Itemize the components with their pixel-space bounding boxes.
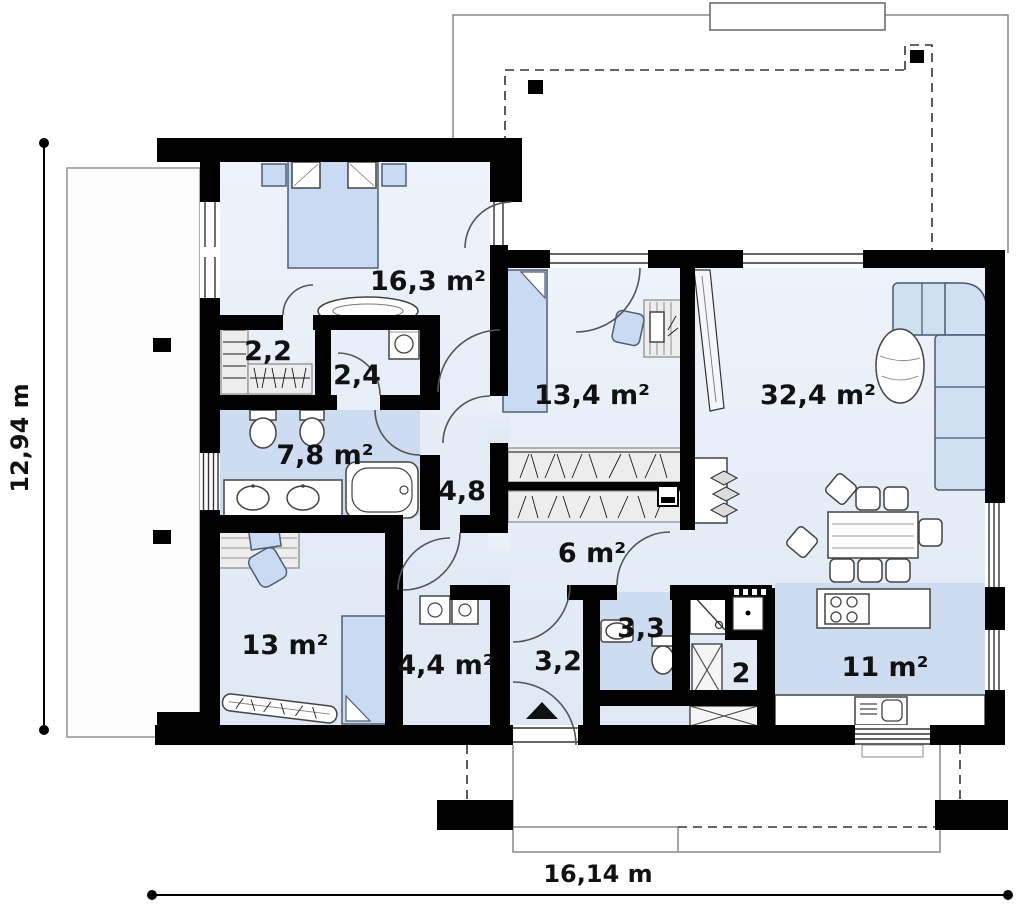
roof-outline	[453, 3, 1008, 253]
floor-plan-drawing: 16,3 m² 2,2 2,4 7,8 m² 4,8 13,4 m² 32,4 …	[0, 0, 1024, 917]
dimension-width-label: 16,14 m	[543, 860, 652, 888]
chair-icon	[858, 559, 882, 582]
terrace-post	[910, 50, 924, 63]
chair-icon	[856, 487, 880, 510]
kitchen-island-icon	[817, 589, 930, 628]
room-label-hall-corridor: 4,8	[438, 476, 486, 507]
room-label-bathroom: 7,8 m²	[276, 440, 373, 471]
room-label-entry: 3,2	[534, 646, 582, 677]
dimension-height-label: 12,94 m	[6, 383, 34, 492]
room-label-hallway: 6 m²	[558, 538, 626, 569]
room-label-bedroom-2: 13,4 m²	[534, 380, 650, 411]
room-label-bedroom-3: 13 m²	[242, 630, 329, 661]
single-bed-icon	[342, 616, 386, 724]
room-label-pantry: 2	[732, 658, 751, 689]
terrace-post	[153, 338, 171, 352]
chair-icon	[884, 487, 908, 510]
room-label-kitchen: 11 m²	[842, 652, 929, 683]
terrace-post	[153, 530, 171, 544]
room-label-wc: 3,3	[617, 613, 665, 644]
window-bathroom	[200, 453, 220, 510]
floor-plan-canvas: 16,3 m² 2,2 2,4 7,8 m² 4,8 13,4 m² 32,4 …	[0, 0, 1024, 917]
chair-icon	[886, 559, 910, 582]
chair-icon	[919, 519, 942, 546]
chair-icon	[611, 309, 645, 346]
entrance-threshold	[513, 725, 578, 745]
window-kitchen-right	[985, 630, 1005, 690]
terrace-post	[528, 80, 543, 94]
nightstand-icon	[262, 164, 286, 186]
window-terrace-door	[200, 202, 220, 298]
terrace-left	[67, 168, 200, 737]
covered-terrace-dashed	[505, 45, 932, 250]
washing-machine-icon	[389, 326, 419, 359]
desk-icon	[644, 300, 681, 357]
coffee-table-icon	[876, 329, 924, 403]
room-label-laundry: 4,4 m²	[397, 650, 494, 681]
toilet-icon	[250, 410, 276, 448]
room-label-utility-small: 2,4	[333, 360, 381, 391]
wall-stub	[935, 800, 1008, 830]
window-living-terrace	[743, 250, 863, 268]
room-label-wardrobe: 2,2	[244, 336, 292, 367]
hall-wardrobe-icon	[508, 448, 682, 522]
window-living-right	[985, 503, 1005, 587]
room-label-living-room: 32,4 m²	[760, 380, 876, 411]
porch-bottom	[437, 745, 1008, 852]
nightstand-icon	[382, 164, 406, 186]
double-sink-icon	[224, 480, 342, 516]
washer-dryer-icon	[420, 596, 478, 624]
window-bedroom2-terrace	[550, 250, 648, 268]
room-label-bedroom-main: 16,3 m²	[370, 266, 486, 297]
chair-icon	[830, 559, 854, 582]
window-bedroom-terrace-door	[490, 202, 508, 245]
kitchen-counter-icon	[775, 695, 985, 727]
wall-stub	[437, 800, 513, 830]
chimney-outline	[710, 3, 885, 30]
kitchen-door-steps	[855, 725, 930, 757]
